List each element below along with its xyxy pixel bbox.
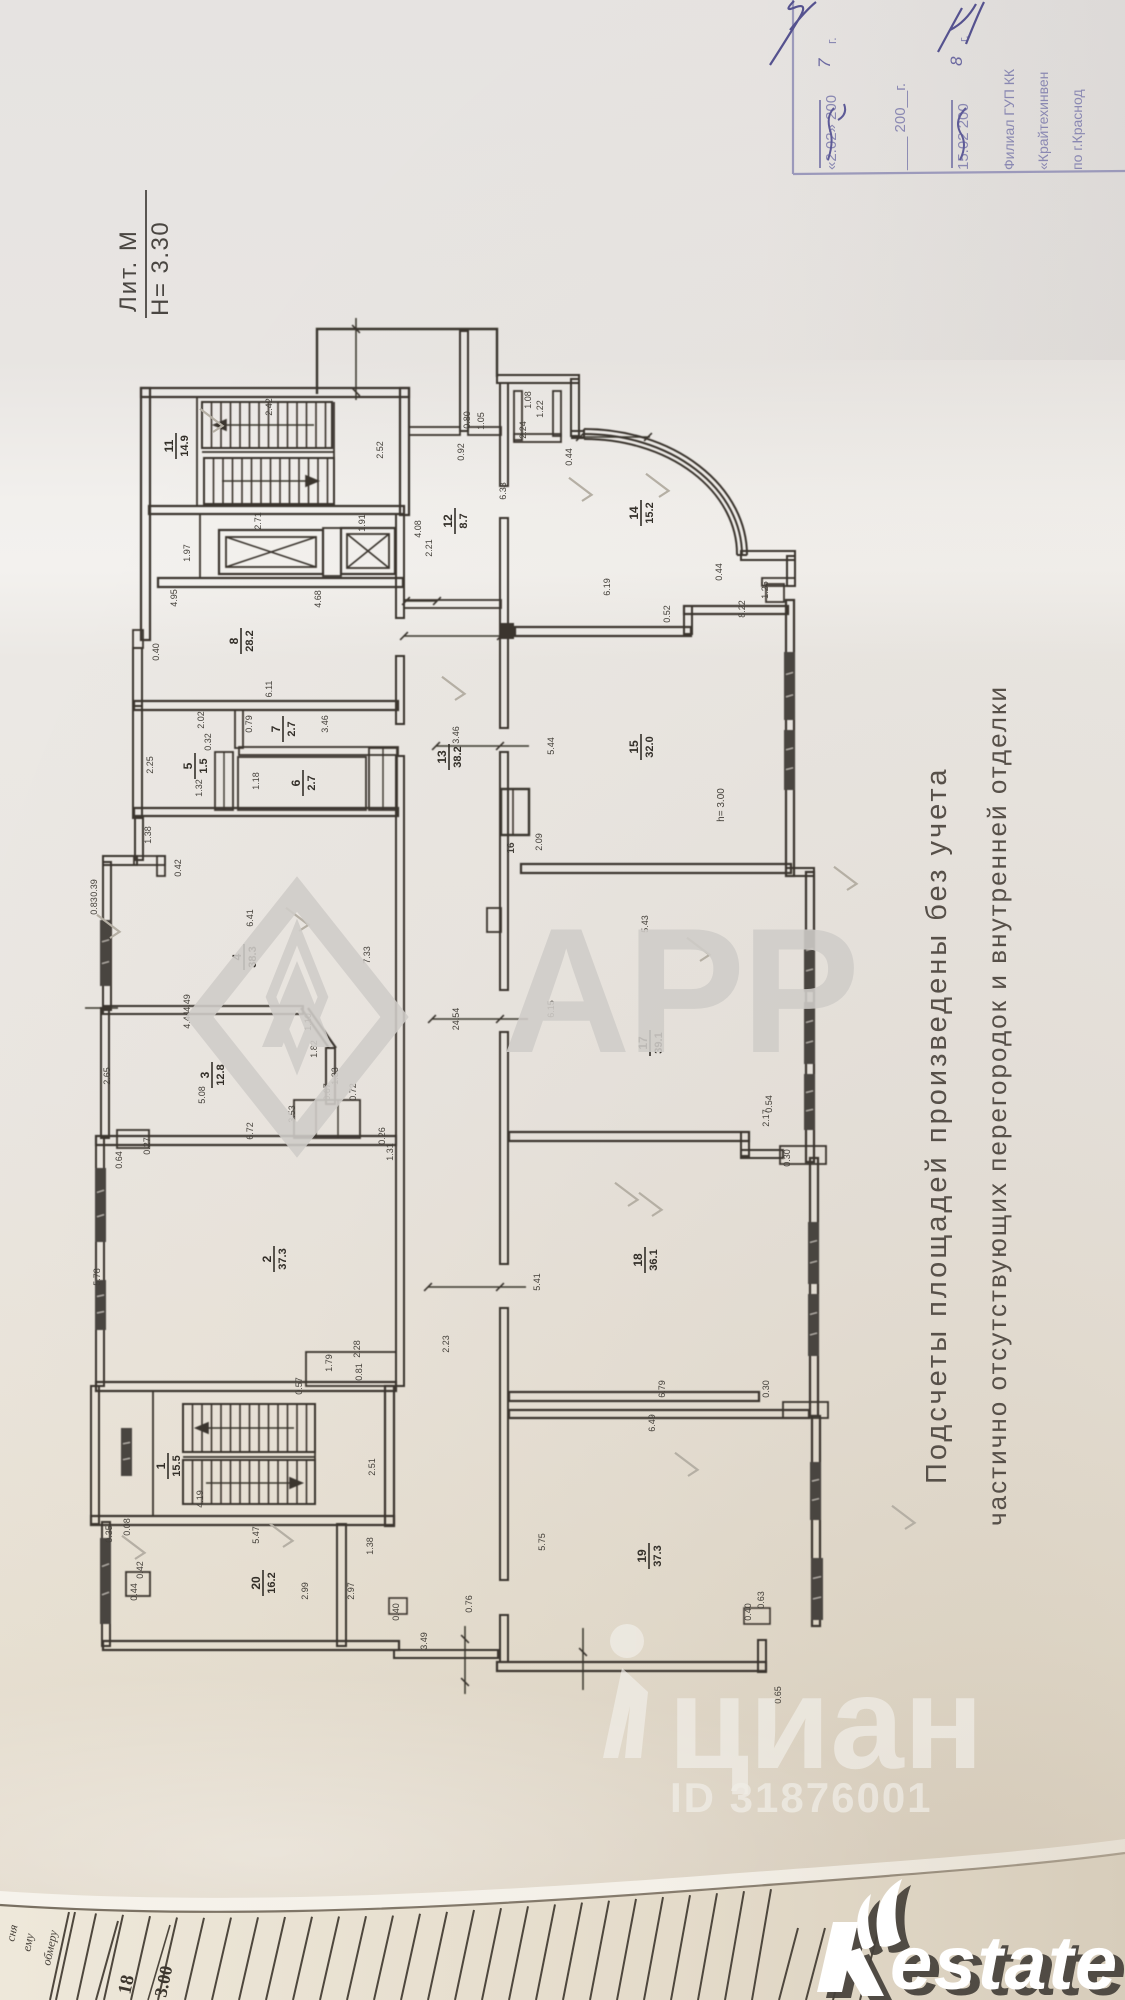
svg-text:0.27: 0.27: [142, 1137, 152, 1155]
svg-text:2.02: 2.02: [196, 711, 206, 729]
svg-text:5.08: 5.08: [197, 1086, 207, 1104]
svg-text:1.25: 1.25: [760, 581, 770, 599]
svg-text:15.2: 15.2: [644, 502, 656, 523]
svg-text:15: 15: [627, 740, 641, 754]
svg-text:6.41: 6.41: [245, 909, 255, 927]
svg-text:5.78: 5.78: [92, 1268, 102, 1286]
svg-text:0.80: 0.80: [462, 411, 472, 429]
svg-text:5.44: 5.44: [546, 737, 556, 755]
svg-text:6.19: 6.19: [602, 578, 612, 596]
svg-text:4.49: 4.49: [182, 994, 192, 1012]
svg-text:37.3: 37.3: [652, 1545, 664, 1566]
svg-text:37.3: 37.3: [277, 1248, 289, 1269]
svg-text:36.1: 36.1: [648, 1249, 660, 1270]
svg-text:0.08: 0.08: [122, 1518, 132, 1536]
svg-text:ID 31876001: ID 31876001: [670, 1774, 933, 1821]
svg-text:3: 3: [198, 1071, 212, 1078]
svg-text:4.68: 4.68: [313, 590, 323, 608]
svg-text:16: 16: [506, 842, 517, 854]
svg-text:0.40: 0.40: [151, 643, 161, 661]
svg-text:0.57: 0.57: [294, 1377, 304, 1395]
svg-text:2.42: 2.42: [264, 398, 274, 416]
svg-text:0.42: 0.42: [135, 1561, 145, 1579]
svg-text:0.79: 0.79: [244, 715, 254, 733]
svg-text:7: 7: [269, 725, 283, 732]
svg-text:20: 20: [249, 1576, 263, 1590]
svg-text:1.18: 1.18: [251, 772, 261, 790]
svg-text:4.19: 4.19: [195, 1490, 205, 1508]
svg-text:4.08: 4.08: [413, 520, 423, 538]
svg-text:24.54: 24.54: [451, 1008, 461, 1031]
svg-text:0.30: 0.30: [761, 1380, 771, 1398]
svg-text:Лит. М: Лит. М: [115, 229, 142, 312]
svg-text:8: 8: [227, 637, 241, 644]
svg-text:1.97: 1.97: [182, 544, 192, 562]
svg-text:1.38: 1.38: [143, 826, 153, 844]
svg-text:5: 5: [181, 762, 195, 769]
svg-text:«Крайтехинвен: «Крайтехинвен: [1035, 72, 1051, 170]
svg-text:АРР: АРР: [502, 891, 856, 1090]
svg-text:2.21: 2.21: [424, 539, 434, 557]
svg-text:1.38: 1.38: [365, 1537, 375, 1555]
svg-text:Подсчеты площадей произведен: Подсчеты площадей произведены без учета: [921, 768, 953, 1484]
svg-text:38.2: 38.2: [452, 746, 464, 767]
svg-text:1.05: 1.05: [476, 412, 486, 430]
svg-text:г.: г.: [824, 37, 839, 44]
svg-text:1.79: 1.79: [324, 1354, 334, 1372]
svg-text:3.46: 3.46: [451, 726, 461, 744]
svg-text:Филиал ГУП КК: Филиал ГУП КК: [1001, 68, 1017, 170]
svg-text:2.65: 2.65: [102, 1067, 112, 1085]
svg-text:0.63: 0.63: [756, 1591, 766, 1609]
svg-text:32.0: 32.0: [644, 736, 656, 757]
svg-text:6.11: 6.11: [264, 681, 274, 698]
svg-text:1.31: 1.31: [385, 1143, 395, 1161]
svg-text:0.30: 0.30: [782, 1149, 792, 1167]
svg-text:5.47: 5.47: [251, 1526, 261, 1544]
svg-text:по г.Краснод: по г.Краснод: [1069, 89, 1085, 170]
svg-text:2.52: 2.52: [375, 441, 385, 459]
svg-text:1: 1: [154, 1462, 168, 1469]
svg-text:2.7: 2.7: [286, 721, 298, 736]
svg-text:1.5: 1.5: [198, 758, 210, 773]
svg-text:12.8: 12.8: [215, 1064, 227, 1085]
svg-text:6.49: 6.49: [647, 1414, 657, 1432]
svg-text:0.26: 0.26: [377, 1127, 387, 1145]
svg-text:0.42: 0.42: [173, 859, 183, 877]
svg-text:2.09: 2.09: [534, 833, 544, 851]
svg-text:0.76: 0.76: [464, 1595, 474, 1613]
svg-text:2.99: 2.99: [300, 1582, 310, 1600]
svg-text:8: 8: [947, 56, 966, 66]
svg-text:2.97: 2.97: [346, 1582, 356, 1600]
svg-text:12: 12: [441, 514, 455, 528]
svg-text:3.49: 3.49: [419, 1632, 429, 1650]
svg-text:0.39: 0.39: [89, 879, 99, 897]
svg-text:0.44: 0.44: [129, 1583, 139, 1601]
svg-text:2.25: 2.25: [145, 756, 155, 774]
svg-text:0.40: 0.40: [391, 1603, 401, 1621]
svg-text:14.9: 14.9: [179, 435, 191, 456]
svg-text:4.95: 4.95: [169, 589, 179, 607]
svg-text:0.32: 0.32: [203, 733, 213, 751]
svg-text:8.22: 8.22: [737, 600, 747, 618]
svg-text:5.41: 5.41: [532, 1273, 542, 1291]
svg-text:0.44: 0.44: [714, 563, 724, 581]
svg-text:8.7: 8.7: [458, 513, 470, 528]
svg-text:h= 3.00: h= 3.00: [716, 788, 727, 822]
svg-text:7: 7: [815, 58, 834, 68]
svg-text:6: 6: [289, 779, 303, 786]
svg-text:6.33: 6.33: [498, 482, 508, 500]
svg-text:2.7: 2.7: [306, 775, 318, 790]
svg-text:3.46: 3.46: [320, 715, 330, 733]
svg-text:0.52: 0.52: [662, 605, 672, 623]
svg-text:16.2: 16.2: [266, 1572, 278, 1593]
svg-text:28.2: 28.2: [244, 630, 256, 651]
svg-text:2: 2: [260, 1255, 274, 1262]
svg-text:0.83: 0.83: [89, 897, 99, 915]
svg-text:1.91: 1.91: [357, 514, 367, 532]
svg-text:0.81: 0.81: [354, 1363, 364, 1381]
svg-text:1.08: 1.08: [523, 391, 533, 409]
svg-text:2.24: 2.24: [518, 421, 528, 439]
svg-text:2.51: 2.51: [367, 1458, 377, 1476]
svg-text:1.32: 1.32: [194, 779, 204, 797]
svg-text:estate: estate: [890, 1921, 1119, 2000]
svg-text:2.28: 2.28: [352, 1340, 362, 1358]
svg-text:2.71: 2.71: [253, 512, 263, 530]
svg-text:1.22: 1.22: [535, 400, 545, 418]
svg-text:18: 18: [631, 1253, 645, 1267]
svg-text:6.72: 6.72: [245, 1122, 255, 1140]
svg-text:6.79: 6.79: [657, 1380, 667, 1398]
svg-text:0.54: 0.54: [764, 1095, 774, 1113]
svg-text:11: 11: [162, 439, 176, 452]
svg-text:0.40: 0.40: [743, 1603, 753, 1621]
svg-text:0.64: 0.64: [114, 1151, 124, 1169]
svg-text:Н= 3.30: Н= 3.30: [147, 221, 174, 316]
svg-text:14: 14: [627, 506, 641, 520]
svg-text:13: 13: [435, 750, 449, 764]
svg-text:частично отсутствующих пере: частично отсутствующих перегородок и вну…: [982, 686, 1012, 1526]
svg-text:0.44: 0.44: [564, 448, 574, 466]
svg-text:____ 200__г.: ____ 200__г.: [892, 83, 909, 171]
svg-text:0.35: 0.35: [104, 1525, 114, 1543]
svg-text:0.92: 0.92: [456, 443, 466, 461]
svg-text:15.5: 15.5: [171, 1455, 183, 1476]
svg-text:2.23: 2.23: [441, 1335, 451, 1353]
svg-text:19: 19: [635, 1549, 649, 1563]
svg-text:5.75: 5.75: [537, 1533, 547, 1551]
